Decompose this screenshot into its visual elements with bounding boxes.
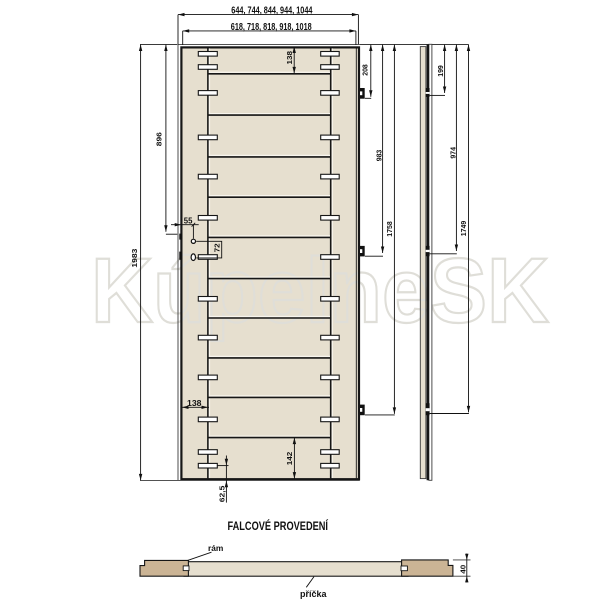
svg-text:příčka: příčka [300, 589, 328, 599]
svg-text:62,5: 62,5 [217, 485, 226, 502]
svg-text:40: 40 [459, 565, 468, 574]
svg-text:142: 142 [285, 452, 294, 466]
svg-text:644, 744, 844, 944, 1044: 644, 744, 844, 944, 1044 [231, 5, 313, 16]
svg-text:138: 138 [285, 51, 294, 65]
svg-text:72: 72 [212, 243, 221, 252]
svg-text:896: 896 [155, 132, 164, 146]
svg-text:rám: rám [208, 543, 223, 553]
svg-text:618, 718, 818, 918, 1018: 618, 718, 818, 918, 1018 [231, 22, 312, 33]
svg-text:208: 208 [360, 64, 369, 76]
svg-text:55: 55 [184, 215, 193, 225]
svg-text:KúpelneSK: KúpelneSK [91, 240, 549, 342]
svg-text:199: 199 [436, 65, 445, 77]
svg-text:138: 138 [187, 398, 202, 408]
svg-text:1758: 1758 [385, 221, 394, 237]
svg-text:1749: 1749 [459, 221, 468, 237]
svg-text:FALCOVÉ PROVEDENÍ: FALCOVÉ PROVEDENÍ [228, 520, 329, 533]
svg-text:983: 983 [375, 150, 384, 162]
svg-text:1983: 1983 [130, 249, 139, 268]
svg-text:974: 974 [449, 146, 458, 158]
